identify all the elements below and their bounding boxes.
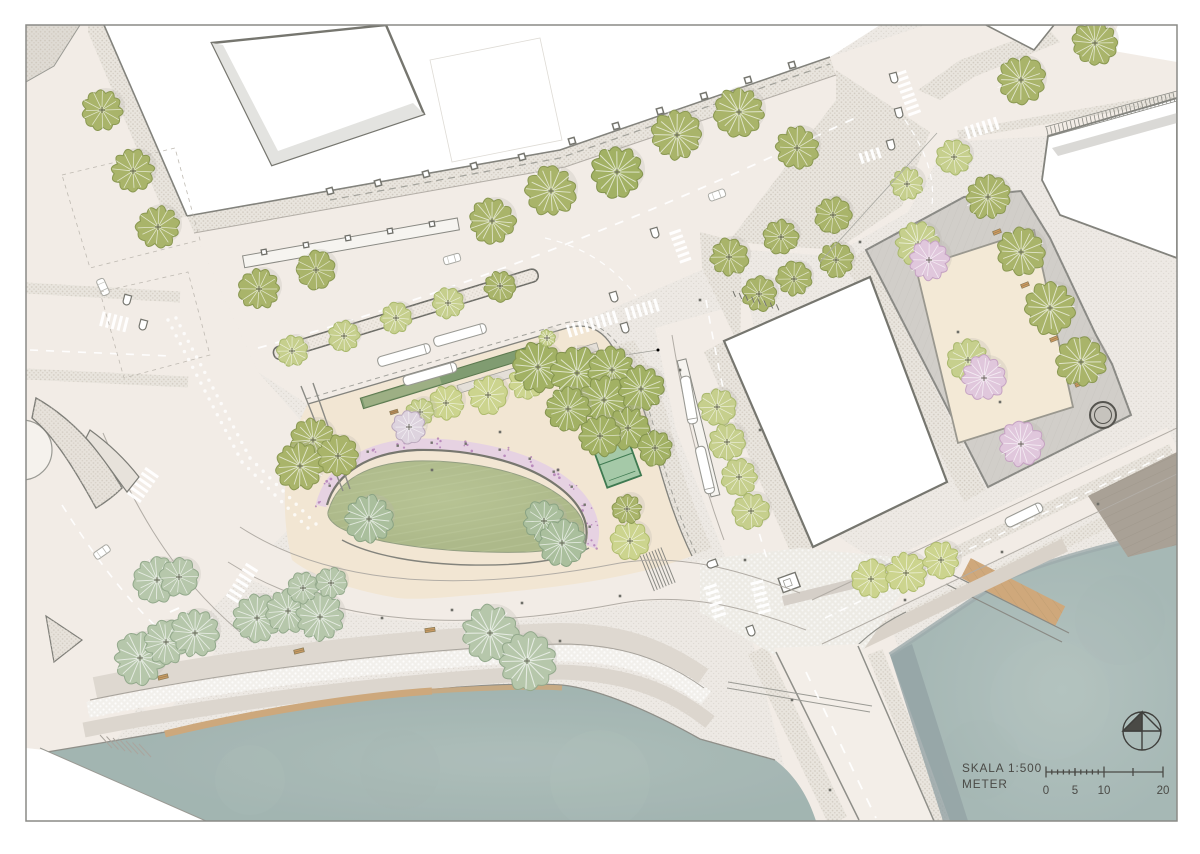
svg-text:SKALA 1:500: SKALA 1:500 bbox=[962, 761, 1042, 775]
svg-text:10: 10 bbox=[1098, 785, 1111, 797]
svg-text:0: 0 bbox=[1043, 785, 1049, 797]
svg-text:5: 5 bbox=[1072, 785, 1078, 797]
svg-text:20: 20 bbox=[1157, 785, 1170, 797]
svg-text:METER: METER bbox=[962, 777, 1008, 791]
